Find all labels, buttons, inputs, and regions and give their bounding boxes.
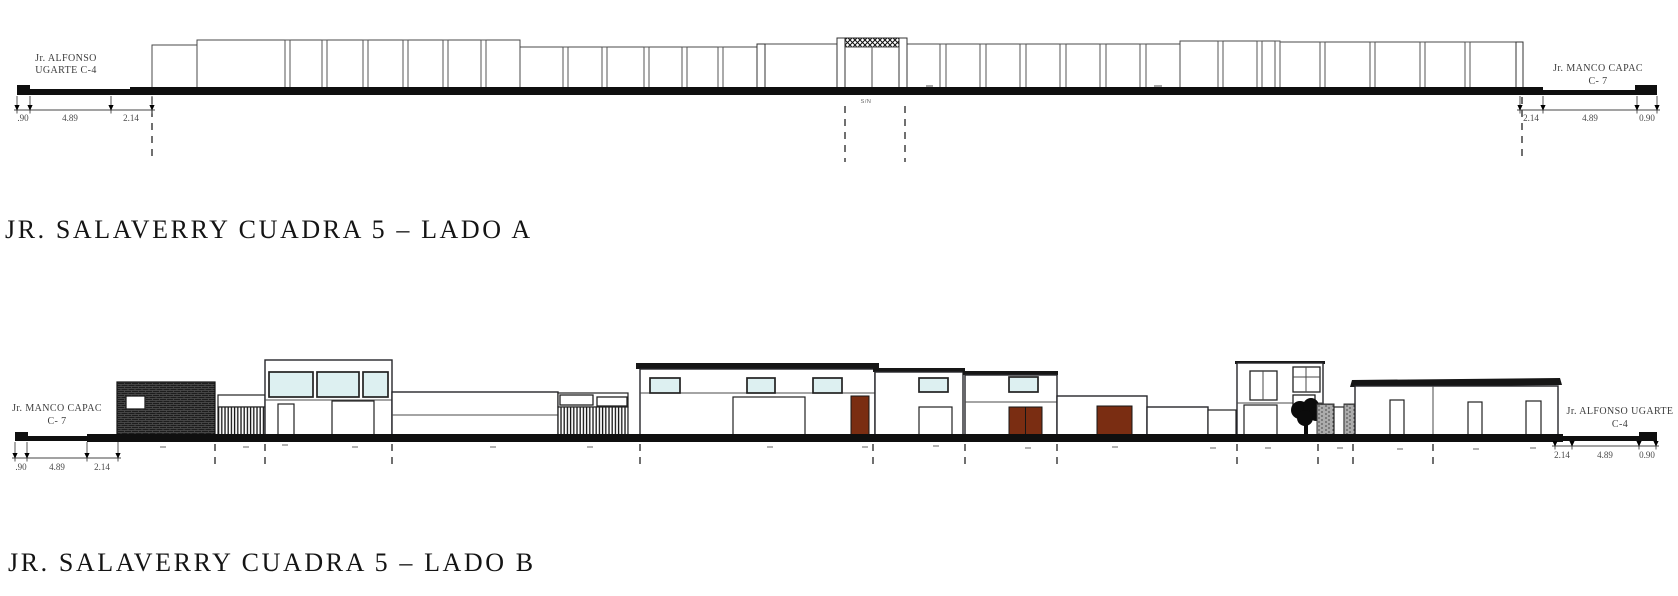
wood-door [851, 396, 869, 436]
dim-a-left-1: 4.89 [62, 113, 78, 123]
sn-annotation: S/N [861, 99, 872, 105]
street-label-b-left: Jr. MANCO CAPAC C- 7 [12, 403, 102, 427]
elevation-a-title: JR. SALAVERRY CUADRA 5 – LADO A [5, 215, 533, 244]
slatted-gate-2 [558, 393, 628, 436]
dim-b-right-0: 2.14 [1554, 450, 1570, 460]
window [813, 378, 842, 393]
door [1334, 407, 1344, 436]
dim-b-right-1: 4.89 [1597, 450, 1613, 460]
house-double-door [963, 371, 1058, 436]
garage-opening [332, 401, 374, 436]
dimension-string-b-right: 2.14 4.89 0.90 [1552, 441, 1659, 460]
window [1009, 377, 1038, 392]
dim-a-left-2: 2.14 [123, 113, 139, 123]
elevation-a: S/N .90 4.89 2.14 2.14 [5, 38, 1660, 244]
dim-b-left-0: .90 [15, 462, 27, 472]
window [269, 372, 313, 397]
brick-building [117, 382, 215, 436]
slatted-gate-1 [218, 395, 265, 436]
lower-opening [1244, 405, 1277, 436]
house-with-door [873, 368, 965, 436]
dimension-string-a-left: .90 4.89 2.14 [14, 96, 155, 123]
drawing-canvas: S/N .90 4.89 2.14 2.14 [0, 0, 1678, 596]
perimeter-wall-2 [1147, 407, 1208, 436]
street-label-b-left-line2: C- 7 [47, 416, 66, 427]
lattice-band [845, 38, 899, 47]
long-building-right [1350, 378, 1562, 436]
window [560, 395, 593, 405]
dim-b-left-2: 2.14 [94, 462, 110, 472]
dim-a-right-2: 0.90 [1639, 113, 1655, 123]
architectural-sheet: S/N .90 4.89 2.14 2.14 [0, 0, 1678, 596]
setback-dashed-lines-a [152, 97, 1522, 162]
dimension-string-a-right: 2.14 4.89 0.90 [1517, 96, 1660, 123]
wood-garage-door [1097, 406, 1132, 436]
dimension-string-b-left: .90 4.89 2.14 [12, 442, 121, 472]
dim-b-left-1: 4.89 [49, 462, 65, 472]
street-label-a-left-line2: UGARTE C-4 [35, 65, 96, 76]
window [919, 378, 948, 392]
lot-marks-b [160, 445, 1536, 449]
elevation-b: .90 4.89 2.14 2.14 4.89 0.90 Jr. MANCO C… [8, 360, 1673, 577]
street-label-a-left: Jr. ALFONSO UGARTE C-4 [35, 53, 97, 76]
perimeter-wall-1 [392, 392, 558, 436]
garage-opening [733, 397, 805, 436]
buildings-b [117, 360, 1562, 436]
street-label-a-left-line1: Jr. ALFONSO [35, 53, 97, 64]
street-label-a-right: Jr. MANCO CAPAC C- 7 [1553, 63, 1643, 87]
elevation-b-title: JR. SALAVERRY CUADRA 5 – LADO B [8, 548, 536, 577]
window [650, 378, 680, 393]
street-label-a-right-line1: Jr. MANCO CAPAC [1553, 63, 1643, 74]
setback-dashed-lines-b [215, 444, 1433, 470]
street-label-b-right-line2: C-4 [1612, 419, 1628, 430]
two-storey-house-left [265, 360, 392, 436]
street-label-a-right-line2: C- 7 [1588, 76, 1607, 87]
window [597, 397, 627, 406]
low-house-garage [1057, 396, 1147, 436]
street-label-b-left-line1: Jr. MANCO CAPAC [12, 403, 102, 414]
dim-a-right-0: 2.14 [1523, 113, 1539, 123]
dim-b-right-2: 0.90 [1639, 450, 1655, 460]
street-label-b-right: Jr. ALFONSO UGARTE C-4 [1567, 406, 1674, 430]
dim-a-right-1: 4.89 [1582, 113, 1598, 123]
window [363, 372, 388, 397]
street-label-b-right-line1: Jr. ALFONSO UGARTE [1567, 406, 1674, 417]
door [1468, 402, 1482, 436]
long-building-center [636, 363, 879, 436]
door [1390, 400, 1404, 436]
door [278, 404, 294, 436]
window [126, 396, 145, 409]
street-door [1208, 410, 1236, 436]
door-opening [919, 407, 952, 436]
door [1526, 401, 1541, 436]
brick-wall-door [1317, 404, 1355, 436]
dim-a-left-0: .90 [17, 113, 29, 123]
window [317, 372, 359, 397]
window [747, 378, 775, 393]
